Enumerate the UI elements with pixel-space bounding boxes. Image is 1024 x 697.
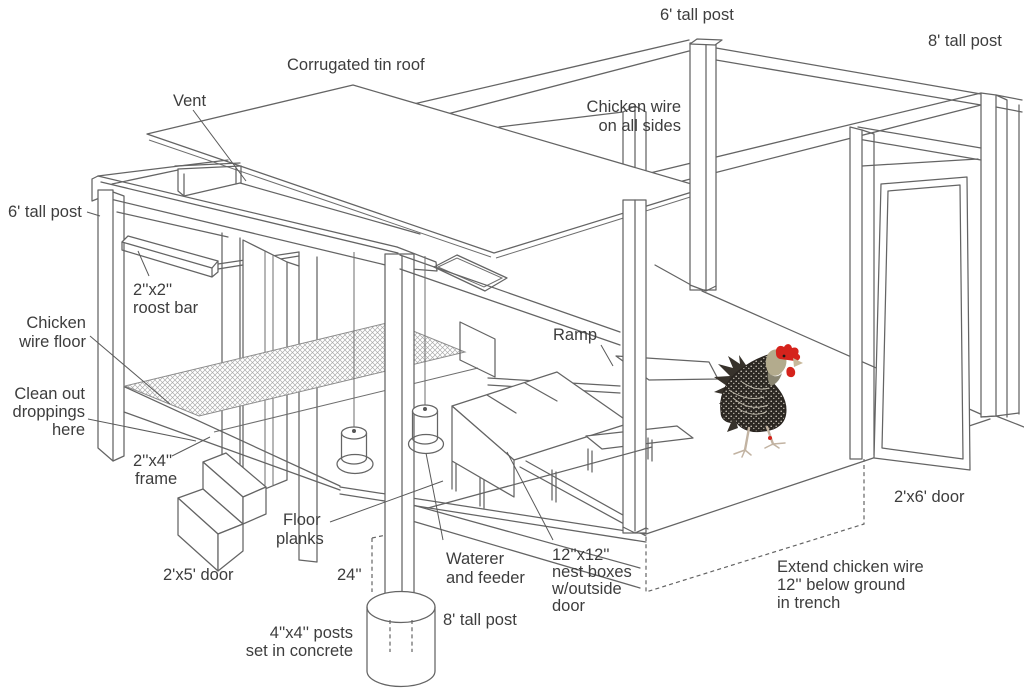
svg-text:w/outside: w/outside: [551, 580, 622, 598]
svg-text:Chicken wire: Chicken wire: [587, 98, 681, 116]
svg-text:Floor: Floor: [283, 511, 321, 529]
svg-text:8' tall post: 8' tall post: [443, 611, 517, 629]
svg-text:door: door: [552, 597, 586, 615]
svg-text:2'x5' door: 2'x5' door: [163, 566, 234, 584]
svg-text:4''x4'' posts: 4''x4'' posts: [270, 624, 353, 642]
svg-text:12''x12'': 12''x12'': [552, 546, 610, 564]
svg-text:wire floor: wire floor: [18, 333, 86, 351]
svg-text:here: here: [52, 421, 85, 439]
svg-text:roost bar: roost bar: [133, 299, 199, 317]
svg-text:2'x6' door: 2'x6' door: [894, 488, 965, 506]
svg-text:6' tall post: 6' tall post: [8, 203, 82, 221]
svg-text:set in concrete: set in concrete: [246, 642, 353, 660]
svg-text:in trench: in trench: [777, 594, 840, 612]
svg-text:8' tall post: 8' tall post: [928, 32, 1002, 50]
svg-text:6' tall post: 6' tall post: [660, 6, 734, 24]
svg-text:nest boxes: nest boxes: [552, 563, 632, 581]
svg-text:Chicken: Chicken: [26, 314, 86, 332]
svg-text:12'' below ground: 12'' below ground: [777, 576, 905, 594]
svg-text:Clean out: Clean out: [14, 385, 85, 403]
svg-text:and feeder: and feeder: [446, 569, 525, 587]
svg-text:frame: frame: [135, 470, 177, 488]
svg-text:Ramp: Ramp: [553, 326, 597, 344]
svg-text:Corrugated tin roof: Corrugated tin roof: [287, 56, 425, 74]
svg-text:Extend chicken wire: Extend chicken wire: [777, 558, 924, 576]
svg-text:on all sides: on all sides: [598, 117, 681, 135]
svg-text:planks: planks: [276, 530, 324, 548]
svg-text:Vent: Vent: [173, 92, 206, 110]
svg-text:2''x2'': 2''x2'': [133, 281, 172, 299]
svg-text:droppings: droppings: [13, 403, 85, 421]
svg-text:Waterer: Waterer: [446, 550, 505, 568]
svg-text:24'': 24'': [337, 566, 362, 584]
svg-text:2''x4'': 2''x4'': [133, 452, 172, 470]
